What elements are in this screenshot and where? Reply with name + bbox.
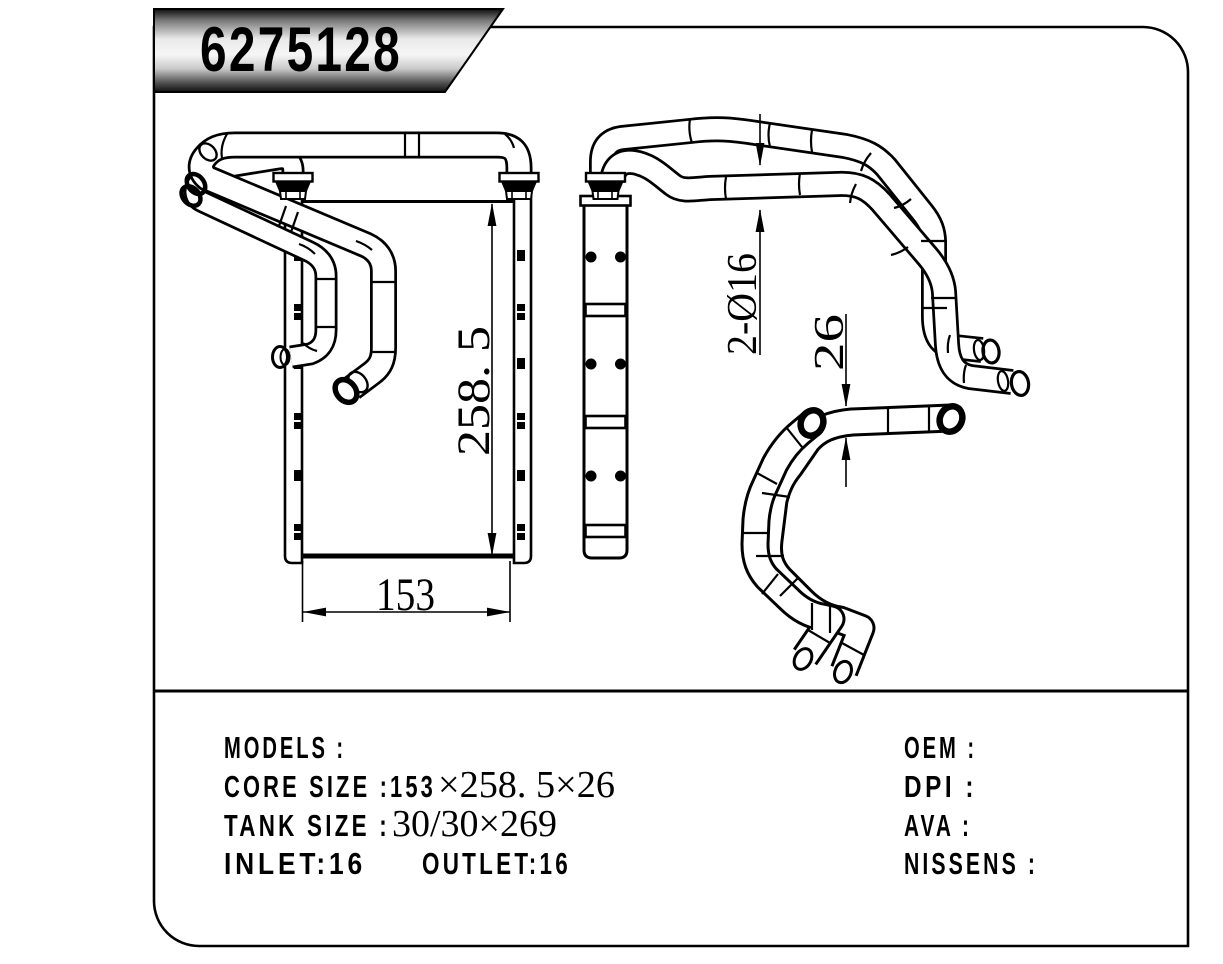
svg-text:OUTLET:16: OUTLET:16 [422,846,571,881]
svg-text:6275128: 6275128 [200,15,402,85]
svg-text:CORE SIZE :153: CORE SIZE :153 [224,769,436,804]
svg-text:MODELS :: MODELS : [224,730,346,765]
svg-text:2-Ø16: 2-Ø16 [720,253,766,355]
svg-text:258. 5: 258. 5 [448,326,500,456]
svg-text:30/30×269: 30/30×269 [392,803,557,845]
svg-text:×258. 5×26: ×258. 5×26 [438,764,615,806]
svg-text:153: 153 [376,569,435,621]
svg-text:TANK SIZE :: TANK SIZE : [224,808,390,843]
svg-text:26: 26 [807,314,853,371]
svg-text:INLET:16: INLET:16 [224,846,366,881]
svg-text:OEM :: OEM : [904,730,977,765]
svg-text:AVA :: AVA : [904,808,972,843]
svg-text:NISSENS :: NISSENS : [904,846,1038,881]
svg-text:DPI :: DPI : [904,769,977,804]
